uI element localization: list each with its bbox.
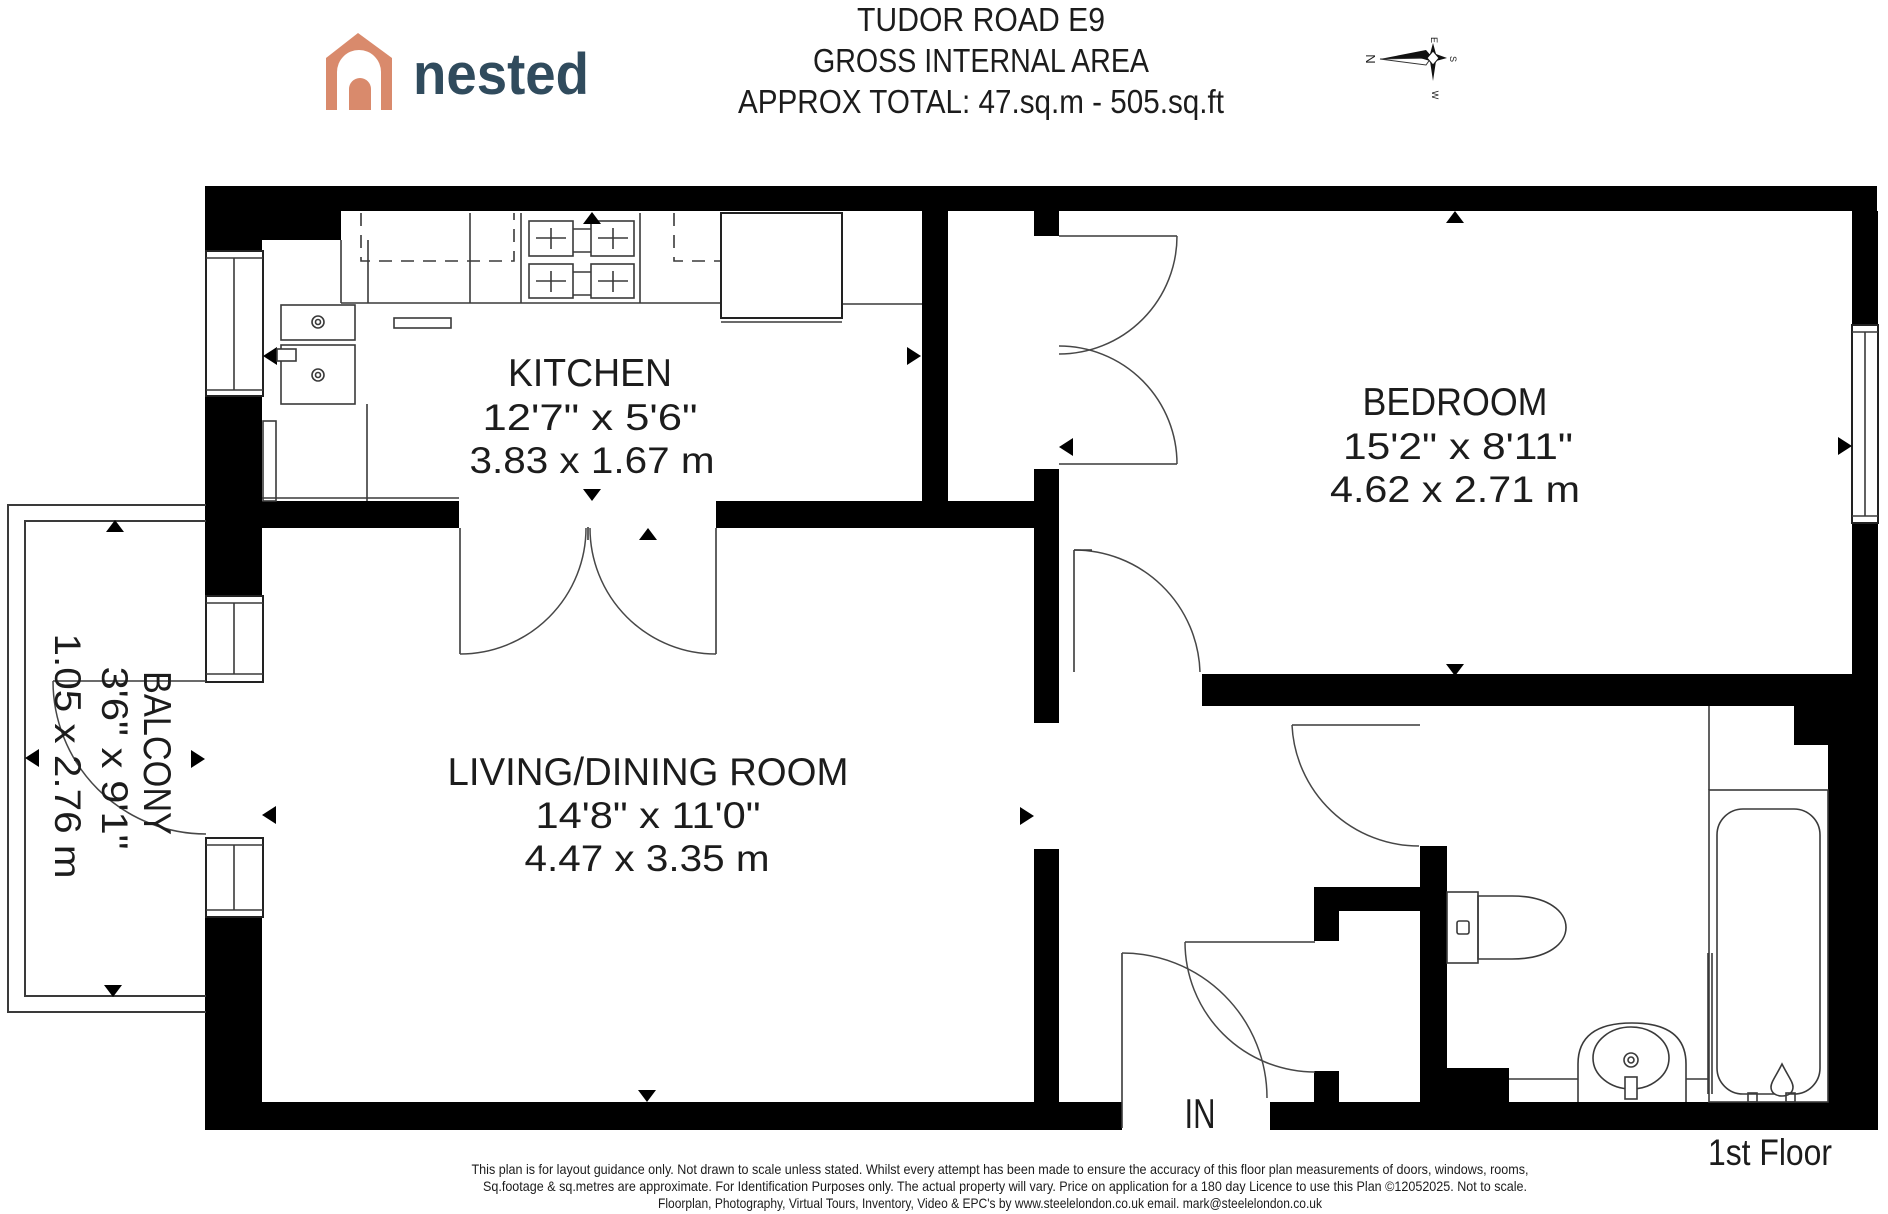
svg-text:12'7" x 5'6": 12'7" x 5'6" [483,397,698,438]
svg-text:3'6" x 9'1": 3'6" x 9'1" [94,667,135,850]
svg-text:TUDOR ROAD E9: TUDOR ROAD E9 [857,1,1105,38]
svg-text:GROSS INTERNAL AREA: GROSS INTERNAL AREA [813,42,1149,79]
svg-text:W: W [1430,91,1440,100]
svg-text:BALCONY: BALCONY [135,671,178,835]
svg-text:S: S [1448,56,1458,62]
svg-text:LIVING/DINING ROOM: LIVING/DINING ROOM [448,751,849,794]
svg-text:1.05 x 2.76 m: 1.05 x 2.76 m [47,634,88,879]
svg-text:Floorplan, Photography, Virtua: Floorplan, Photography, Virtual Tours, I… [658,1195,1323,1211]
svg-text:4.47 x 3.35 m: 4.47 x 3.35 m [525,838,770,879]
svg-text:3.83 x 1.67 m: 3.83 x 1.67 m [470,440,715,481]
svg-text:APPROX TOTAL: 47.sq.m - 505.sq: APPROX TOTAL: 47.sq.m - 505.sq.ft [738,83,1224,120]
svg-text:4.62 x 2.71 m: 4.62 x 2.71 m [1330,469,1580,510]
svg-text:E: E [1429,37,1439,43]
svg-text:N: N [1363,54,1378,63]
svg-text:This plan is for layout guidan: This plan is for layout guidance only. N… [472,1161,1529,1177]
svg-text:KITCHEN: KITCHEN [508,352,672,395]
svg-text:1st Floor: 1st Floor [1708,1132,1832,1173]
svg-text:14'8" x 11'0": 14'8" x 11'0" [536,795,761,836]
svg-text:IN: IN [1185,1090,1216,1137]
svg-text:BEDROOM: BEDROOM [1363,381,1548,424]
svg-text:Sq.footage & sq.metres are app: Sq.footage & sq.metres are approximate. … [483,1178,1527,1194]
svg-text:nested: nested [413,42,589,107]
svg-text:15'2" x 8'11": 15'2" x 8'11" [1343,426,1573,467]
